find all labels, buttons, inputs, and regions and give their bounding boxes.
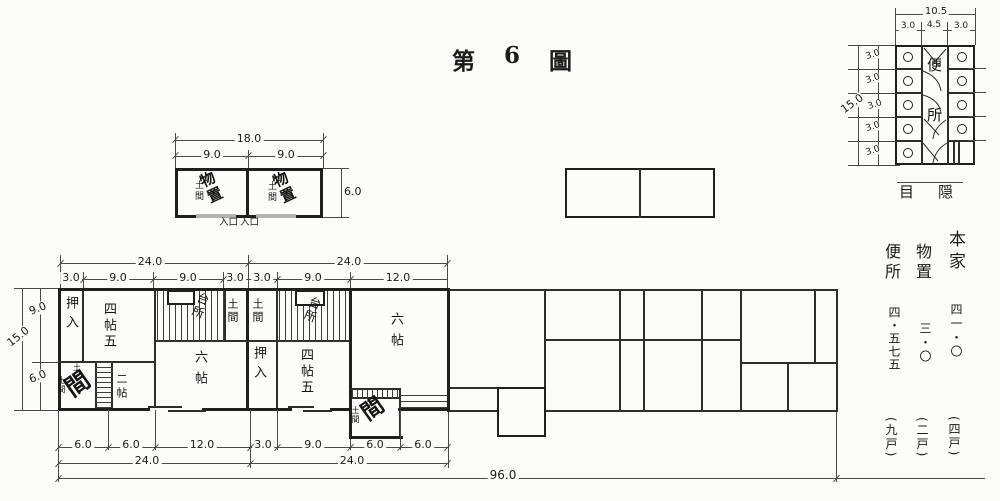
wall: [450, 410, 498, 412]
dim-label: 3.0: [251, 272, 273, 284]
room-label-doma: 土間: [227, 298, 238, 324]
sliding-door-line: [288, 406, 314, 408]
projection-line: [836, 412, 837, 482]
toilet-hole: [957, 100, 967, 110]
room-label-oshiire: 押入: [252, 346, 265, 384]
room-label-nijo: 二帖: [116, 373, 127, 401]
wall: [398, 408, 450, 411]
party-wall: [246, 290, 249, 408]
dim-label: 9.0: [275, 149, 297, 161]
wall: [740, 289, 742, 411]
projection-line: [248, 255, 249, 288]
dim-label: 6.0: [412, 439, 434, 451]
sink: [167, 290, 195, 305]
step-ladder: [96, 362, 112, 408]
projection-line: [400, 410, 401, 450]
wall: [836, 289, 838, 412]
room-label-oshiire: 押入: [64, 296, 77, 334]
entrance-porch-outline: [497, 387, 546, 437]
party-wall: [447, 288, 450, 412]
room-label-rokujo: 六帖: [193, 350, 206, 392]
dim-line: [22, 288, 23, 410]
toilet-hole: [957, 124, 967, 134]
dim-label: 10.5: [923, 6, 949, 17]
dim-label: 18.0: [235, 133, 264, 145]
dim-label: 6.0: [120, 439, 142, 451]
stall-partition: [895, 92, 922, 94]
dim-label: 4.5: [925, 21, 943, 31]
veranda-hatch: [401, 390, 447, 408]
wall: [58, 288, 450, 291]
dim-label-overall: 96.0: [488, 469, 519, 482]
projection-line: [848, 165, 900, 166]
dim-label: 9.0: [27, 300, 48, 317]
room-label-benjo-char1: 便: [927, 58, 942, 74]
projection-line: [848, 117, 900, 118]
legend-units-honke: (四戸): [948, 416, 960, 457]
dim-line: [341, 168, 342, 218]
room-label-yojohan: 四帖五: [299, 348, 312, 396]
wall: [643, 289, 645, 411]
dim-label: 3.0: [952, 22, 970, 32]
wall: [246, 168, 249, 218]
wall: [276, 290, 278, 408]
projection-line: [250, 410, 251, 468]
toilet-hole: [957, 52, 967, 62]
title-char-3: 圖: [549, 42, 573, 76]
dim-label: 9.0: [302, 272, 324, 284]
projection-line: [323, 168, 349, 169]
dim-label: 3.0: [224, 272, 246, 284]
wall: [921, 45, 923, 165]
dim-label: 15.0: [839, 92, 866, 116]
toilet-caption: 目隠: [899, 185, 977, 201]
dim-label: 9.0: [107, 272, 129, 284]
projection-line: [947, 22, 948, 45]
legend-name-benjo: 便所: [883, 243, 899, 283]
room-label-benjo-char2: 所: [927, 108, 942, 124]
projection-line: [921, 22, 922, 45]
wall: [787, 362, 789, 411]
room-label-yojohan: 四帖五: [102, 302, 115, 350]
stall-partition: [895, 68, 922, 70]
entrance-door-line: [958, 141, 960, 164]
projection-line: [277, 410, 278, 450]
toilet-hole: [903, 148, 913, 158]
wall: [545, 410, 838, 412]
dim-label: 6.0: [72, 439, 94, 451]
legend-name-honke: 本家: [946, 230, 963, 274]
projection-line: [848, 69, 900, 70]
projection-line: [32, 362, 58, 363]
tick-line: [968, 92, 986, 93]
wall: [619, 289, 621, 411]
dim-label: 3.0: [60, 272, 82, 284]
legend-area-honke: 四一・〇: [950, 303, 962, 359]
stall-partition: [895, 140, 922, 142]
projection-line: [155, 410, 156, 450]
entrance-door-line: [953, 141, 955, 164]
tick-line: [968, 68, 986, 69]
projection-line: [14, 410, 58, 411]
dim-label: 9.0: [302, 439, 324, 451]
dim-label: 24.0: [133, 455, 162, 467]
entrance-label: 入口: [240, 218, 259, 228]
room-label-doma-big: 間: [61, 367, 95, 401]
entrance-opening: [256, 214, 296, 218]
wall: [82, 290, 84, 362]
projection-line: [848, 141, 900, 142]
projection-line: [108, 410, 109, 450]
toilet-hole: [903, 52, 913, 62]
dim-label: 12.0: [188, 439, 217, 451]
title-char-2: 6: [504, 42, 521, 76]
toilet-hole: [903, 124, 913, 134]
dim-label: 9.0: [177, 272, 199, 284]
room-label-doma: 土間: [252, 298, 263, 324]
projection-line: [975, 8, 976, 45]
wall: [154, 290, 156, 408]
dim-label: 24.0: [136, 256, 165, 268]
entrance-label: 入口: [219, 218, 238, 228]
toilet-hole: [957, 76, 967, 86]
tick-line: [968, 140, 986, 141]
legend-units-benjo: (九戸): [885, 417, 897, 458]
dim-line: [60, 263, 447, 264]
toilet-hole: [903, 100, 913, 110]
wall: [814, 289, 816, 363]
toilet-hole: [903, 76, 913, 86]
dim-label: 6.0: [364, 439, 386, 451]
room-label-rokujo: 六帖: [389, 312, 402, 354]
projection-line: [848, 45, 900, 46]
dim-label: 24.0: [338, 455, 367, 467]
room-label-doma-sub: 土間: [351, 406, 359, 424]
wall: [701, 289, 703, 411]
room-label-doma-big: 間: [357, 394, 388, 426]
dim-label: 3.0: [899, 22, 917, 32]
dim-label: 12.0: [384, 272, 413, 284]
legend-units-monooki: (二戸): [916, 417, 928, 458]
sliding-door-line: [303, 410, 332, 412]
legend-name-monooki: 物置: [914, 243, 930, 283]
figure-6-floor-plan-sheet: 第 6 圖 18.0 9.0 9.0 土間 物置 土間 物置 6.0 入口 入口: [0, 0, 1000, 501]
projection-line: [323, 217, 349, 218]
stall-partition: [895, 116, 922, 118]
dim-line: [175, 156, 323, 157]
title-char-1: 第: [452, 42, 476, 76]
dim-label: 6.0: [344, 186, 362, 198]
dim-line: [58, 478, 985, 479]
projection-line: [447, 255, 448, 288]
dim-label: 6.0: [27, 368, 48, 385]
dim-label: 9.0: [201, 149, 223, 161]
page-title: 第 6 圖: [452, 42, 573, 76]
legend-area-benjo: 四・五七五: [888, 306, 900, 371]
sliding-door-line: [168, 410, 206, 412]
projection-line: [14, 288, 58, 289]
dim-label: 24.0: [335, 256, 364, 268]
sliding-door-line: [148, 406, 182, 408]
wall: [545, 339, 741, 341]
wall: [740, 362, 838, 364]
legend-area-monooki: 三・〇: [919, 322, 931, 364]
dim-label: 15.0: [5, 325, 31, 349]
dim-label: 3.0: [252, 439, 274, 451]
wall: [947, 45, 949, 165]
tick-line: [968, 116, 986, 117]
dim-label: 3.0: [867, 99, 884, 112]
wall: [639, 168, 641, 218]
